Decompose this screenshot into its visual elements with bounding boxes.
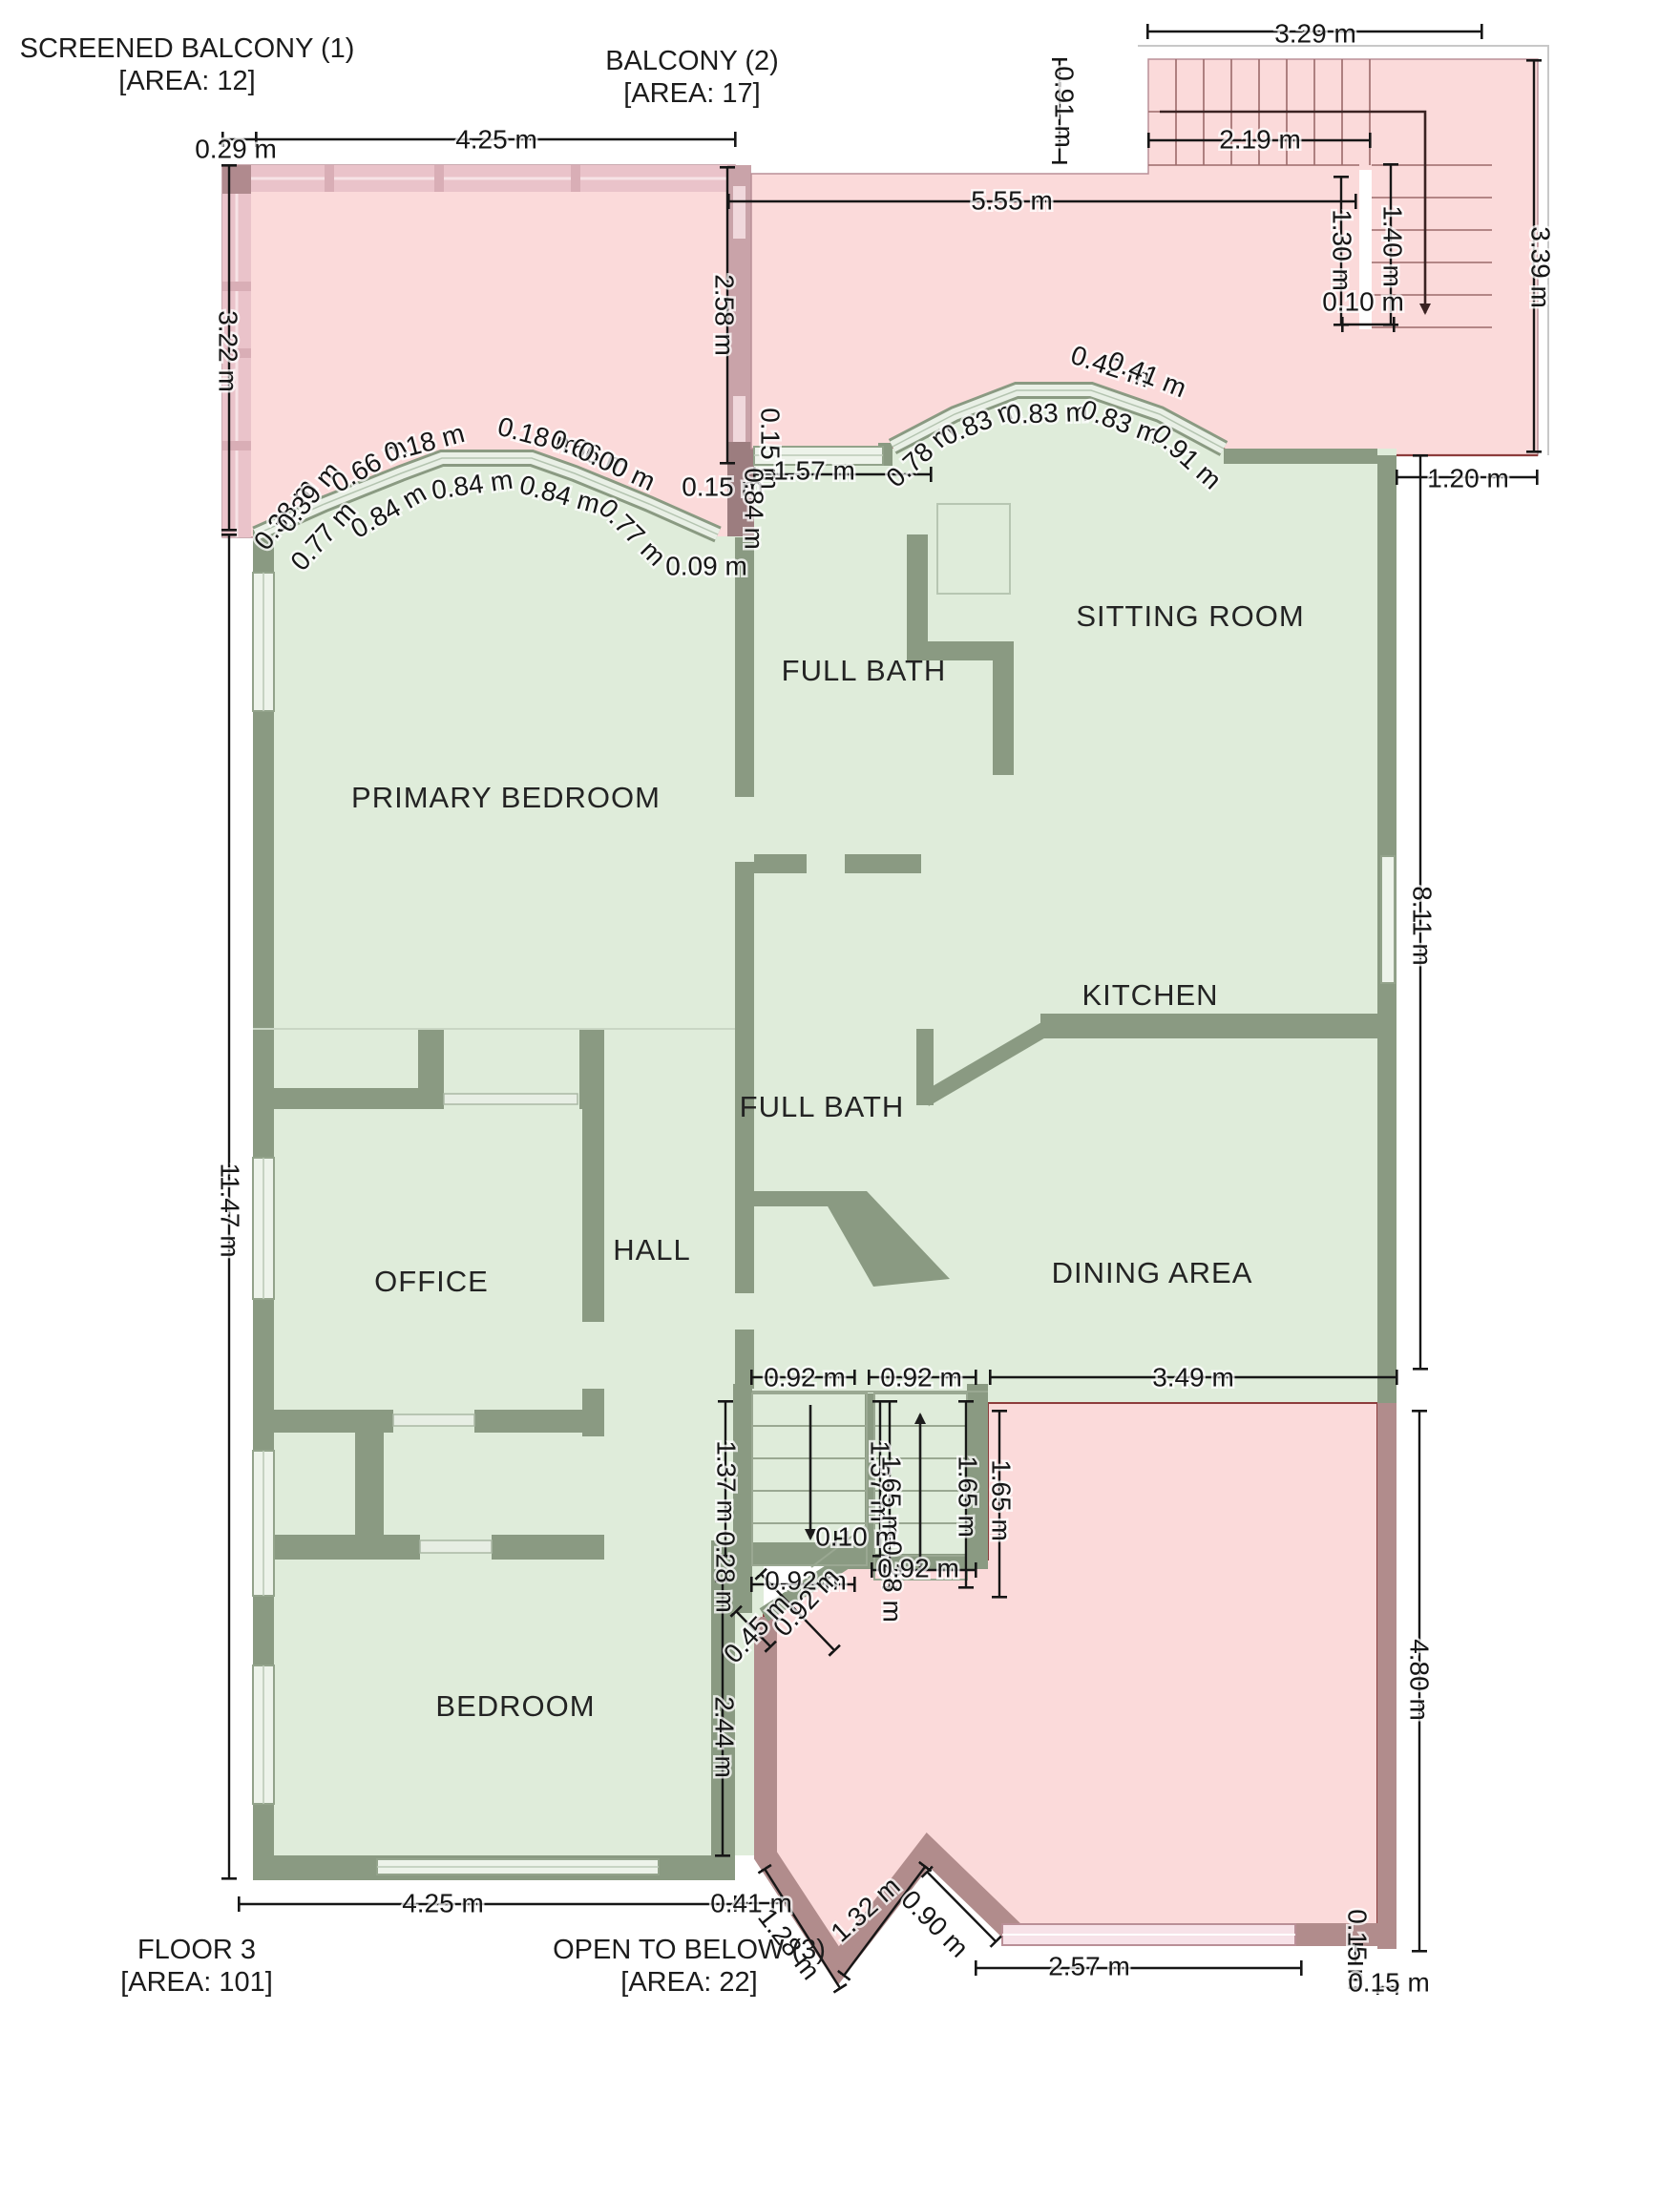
area-label-line2: [AREA: 101] [120,1966,273,1999]
dimension-label: 4.25 m [455,124,537,154]
room-label: SITTING ROOM [1076,599,1304,633]
dimension-label: 0.28 m [711,1531,741,1613]
dimension-label: 5.55 m [971,185,1053,215]
door-opening [393,1414,474,1426]
area-label-line1: SCREENED BALCONY (1) [20,32,355,65]
dimension-label: 2.58 m [710,274,740,356]
area-label-line2: [AREA: 12] [20,65,355,97]
room-label: FULL BATH [782,654,947,687]
room-label: BEDROOM [435,1689,595,1723]
dimension-label: 0.92 m [764,1362,846,1392]
dimension-label: 1.57 m [773,455,855,485]
door-opening [444,1094,577,1104]
dimension-label: 1.65 m [954,1456,983,1538]
dimension-label: 0.92 m [880,1362,962,1392]
dimension-label: 0.10 m [1322,286,1404,316]
room-label: KITCHEN [1081,978,1218,1012]
dimension-label: 1.30 m [1328,209,1357,291]
dimension-label: 3.29 m [1274,18,1356,48]
dimension-label: 0.92 m [877,1553,959,1582]
area-label-line1: OPEN TO BELOW (3) [553,1934,826,1966]
area-label-line2: [AREA: 17] [605,77,779,110]
room-label: FULL BATH [740,1090,905,1123]
room-label: DINING AREA [1052,1256,1253,1289]
open-below-right-wall [1377,1403,1396,1949]
dimension-label: 1.37 m [712,1440,742,1522]
dimension-label: 0.15 m [1348,1967,1430,1997]
area-label-line1: FLOOR 3 [120,1934,273,1966]
floor-plan: SITTING ROOMFULL BATHPRIMARY BEDROOMKITC… [0,0,1680,2199]
dimension-label: 2.57 m [1048,1951,1130,1980]
dimension-label: 2.19 m [1219,124,1301,154]
screened-balcony-label: SCREENED BALCONY (1) [AREA: 12] [20,32,355,97]
floor3-label: FLOOR 3 [AREA: 101] [120,1934,273,1999]
dimension-label: 4.80 m [1405,1639,1435,1721]
open-to-below-label: OPEN TO BELOW (3) [AREA: 22] [553,1934,826,1999]
dimension-label: 3.49 m [1152,1362,1234,1392]
dimension-label: 0.91 m [1050,66,1080,148]
balcony2-label: BALCONY (2) [AREA: 17] [605,45,779,110]
dimension-label: 1.65 m [987,1459,1017,1541]
window [1381,856,1395,983]
dimension-label: 3.39 m [1526,226,1556,308]
dimension-label: 1.40 m [1378,205,1408,287]
room-label: PRIMARY BEDROOM [351,781,661,814]
dimension-label: 8.11 m [1408,886,1438,966]
balcony2-floor [751,59,1538,455]
room-label: OFFICE [374,1265,489,1298]
dimension-label: 2.44 m [710,1696,740,1778]
dimension-label: 1.20 m [1427,463,1509,492]
area-label-line1: BALCONY (2) [605,45,779,77]
dimension-label: 11.47 m [216,1162,245,1257]
dimension-label: 0.09 m [665,551,747,580]
area-label-line2: [AREA: 22] [553,1966,826,1999]
door-opening [420,1540,492,1553]
dimension-label: 4.25 m [402,1888,484,1917]
floor-plan-page: SITTING ROOMFULL BATHPRIMARY BEDROOMKITC… [0,0,1680,2199]
dimension-label: 0.29 m [195,134,277,163]
dimension-label: 3.22 m [214,310,243,392]
room-label: HALL [613,1233,691,1267]
dimension-label: 0.83 m [1006,397,1089,429]
dimension-label: 0.84 m [740,468,769,550]
